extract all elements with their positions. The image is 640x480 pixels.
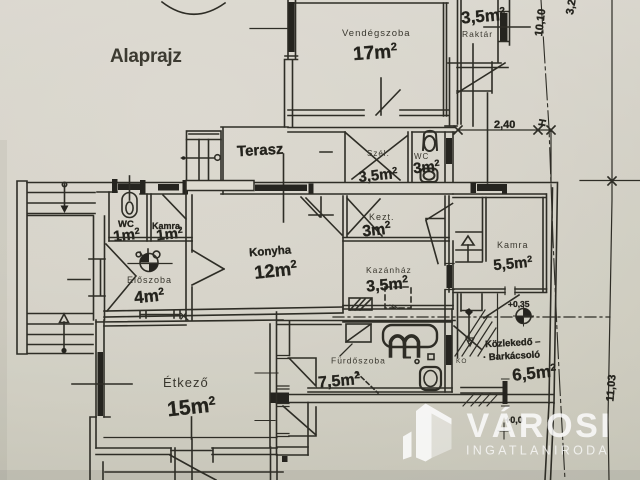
svg-text:3,5m2: 3,5m2: [365, 274, 409, 296]
svg-text:KO: KO: [456, 358, 467, 365]
svg-text:Kamra: Kamra: [497, 240, 529, 250]
svg-text:11,03: 11,03: [604, 374, 618, 402]
svg-text:Alaprajz: Alaprajz: [110, 46, 182, 67]
svg-text:+0,35: +0,35: [508, 299, 530, 309]
svg-text:Terasz: Terasz: [237, 141, 284, 160]
svg-text:Fürdőszoba: Fürdőszoba: [331, 356, 386, 366]
svg-text:Étkező: Étkező: [163, 375, 209, 390]
svg-text:2,40: 2,40: [494, 119, 515, 131]
svg-text:Vendégszoba: Vendégszoba: [342, 28, 411, 39]
svg-text:VÁROSI: VÁROSI: [467, 407, 613, 445]
svg-text:5,5m2: 5,5m2: [493, 254, 534, 274]
svg-text:Raktár: Raktár: [462, 29, 493, 39]
svg-text:17m2: 17m2: [352, 41, 398, 65]
svg-text:7,5m2: 7,5m2: [317, 370, 361, 392]
svg-text:Szél.: Szél.: [367, 149, 390, 158]
svg-text:Előszoba: Előszoba: [127, 275, 172, 285]
svg-text:12m2: 12m2: [253, 257, 298, 282]
svg-text:INGATLANIRODA: INGATLANIRODA: [466, 444, 610, 458]
svg-text:3,5m2: 3,5m2: [460, 5, 506, 28]
